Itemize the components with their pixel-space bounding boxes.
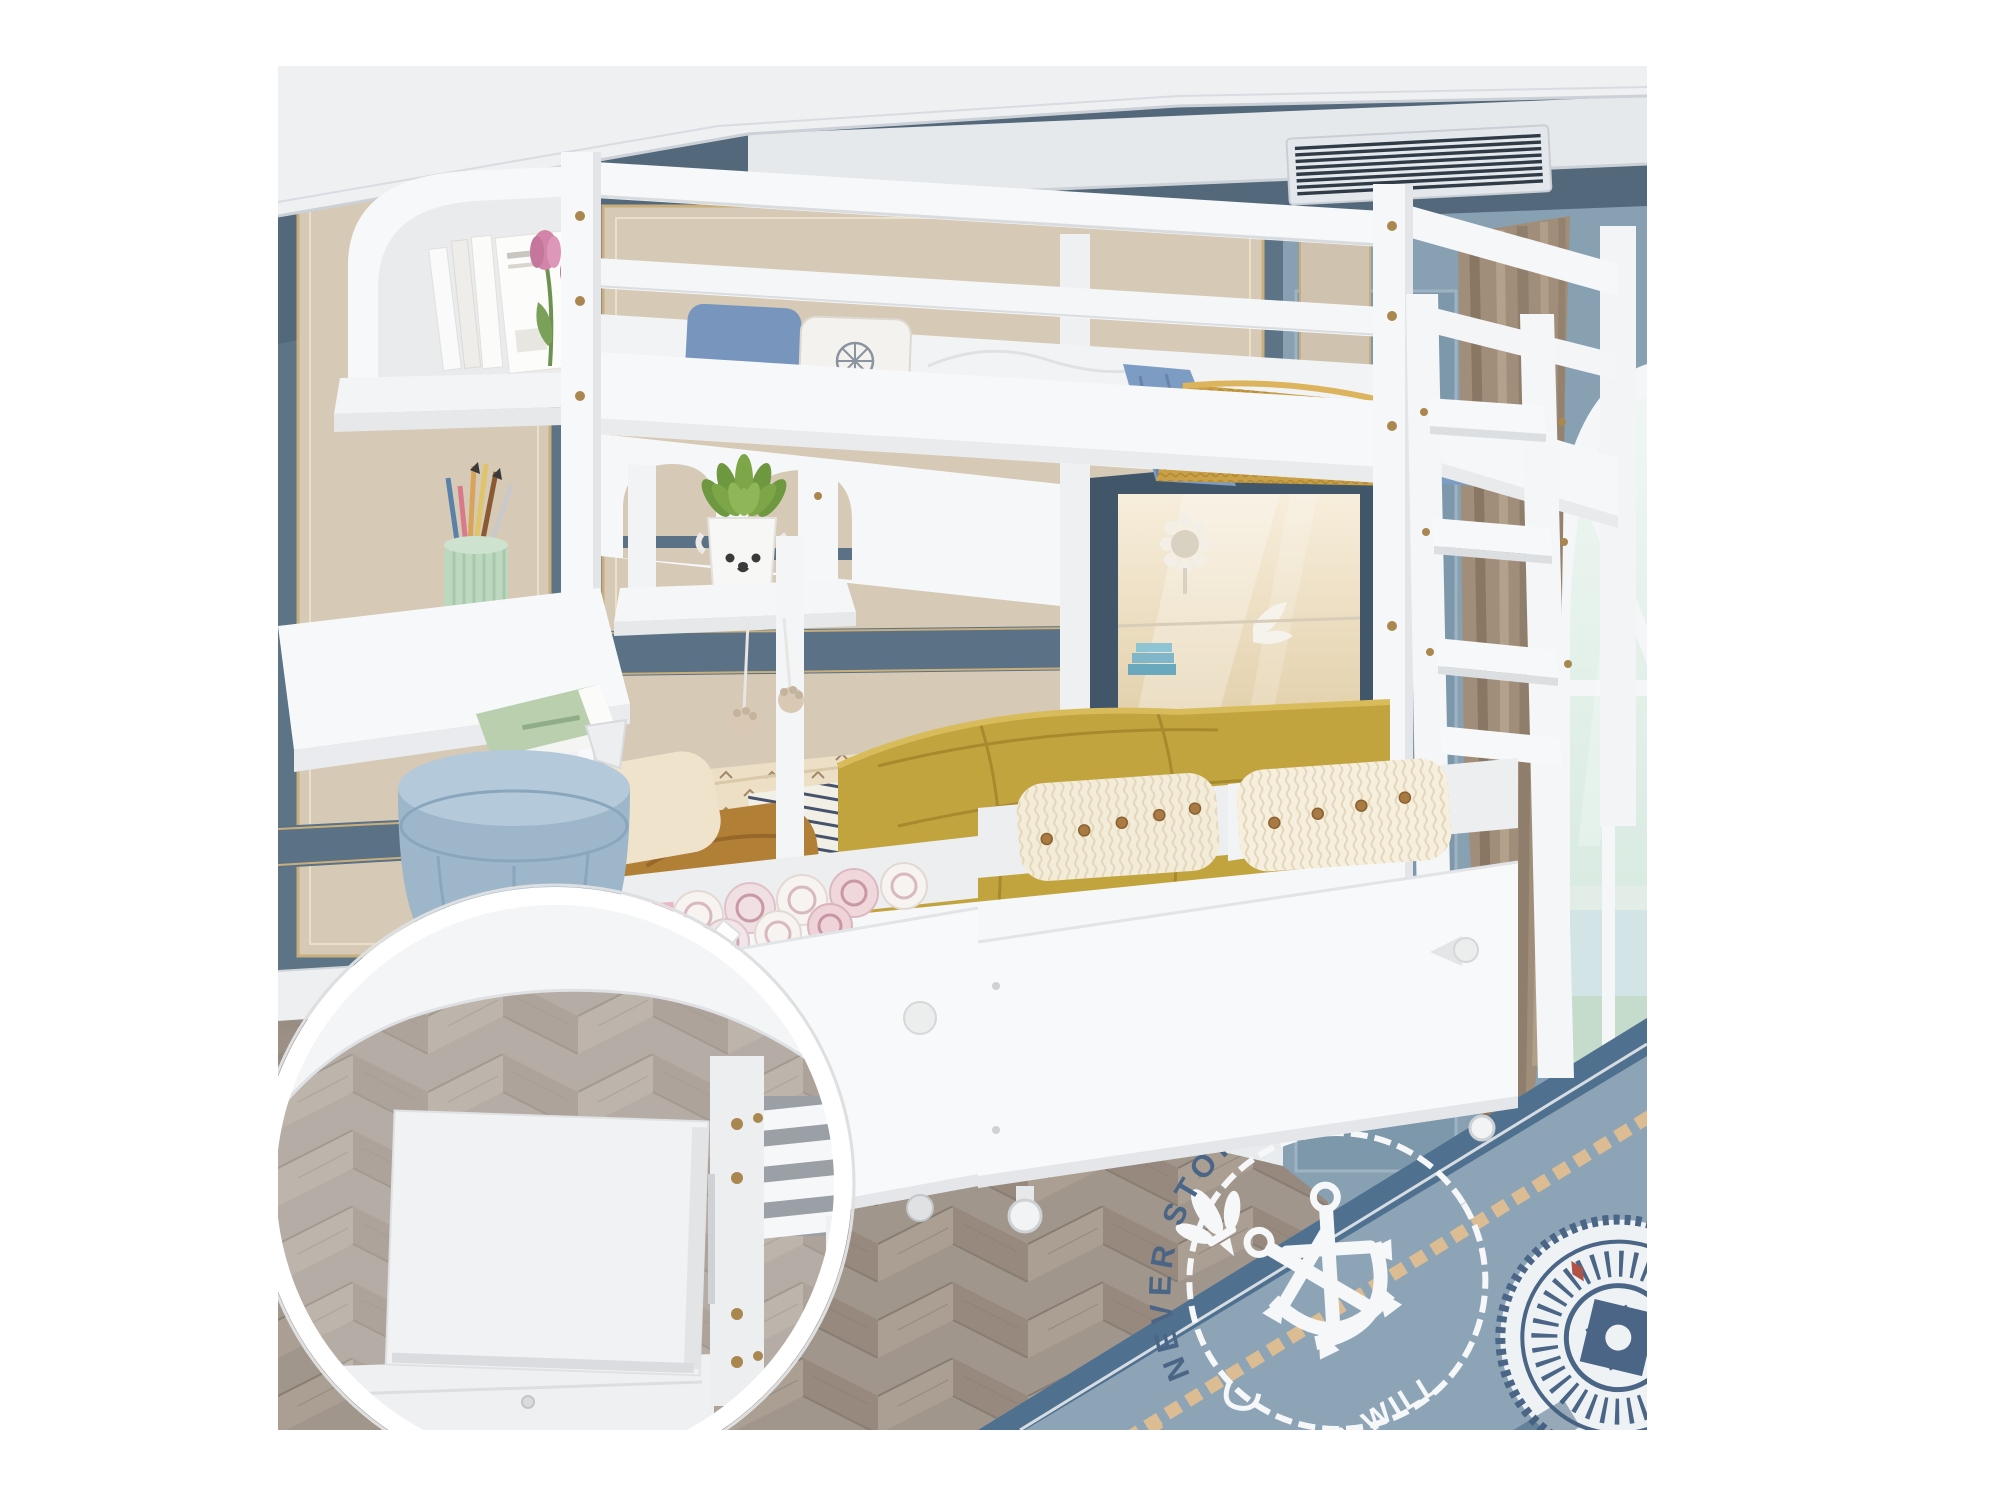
hanging-shelf — [614, 454, 856, 636]
headboard-shelf — [334, 166, 596, 432]
product-photo: NEVER STOP THE SEA WILL — [278, 66, 1647, 1430]
lit-alcove — [1090, 452, 1373, 731]
ac-vent — [1286, 125, 1551, 205]
page: NEVER STOP THE SEA WILL — [0, 0, 2000, 1500]
left-drawer-knob — [904, 1002, 936, 1034]
inset-folded-desk — [386, 1111, 709, 1376]
